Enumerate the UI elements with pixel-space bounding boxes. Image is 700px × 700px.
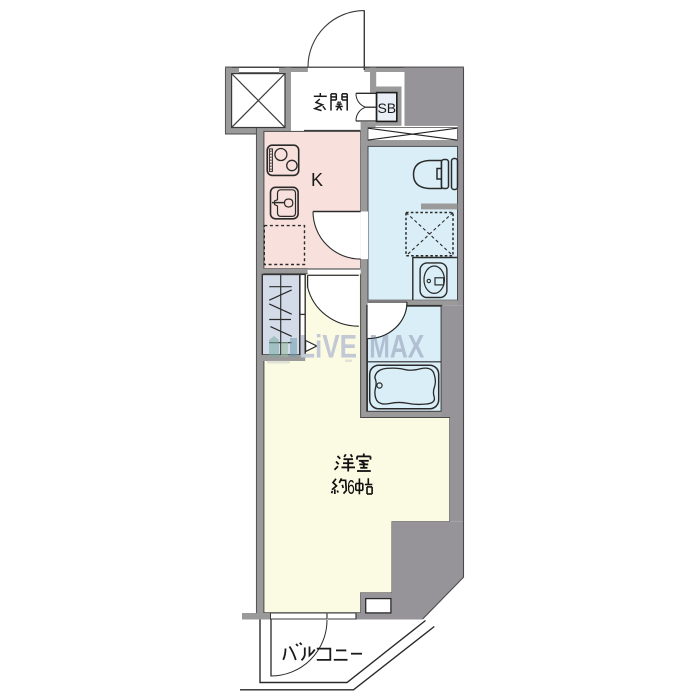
svg-text:LiVE: LiVE [299,329,357,365]
svg-text:6: 6 [347,477,355,499]
svg-text:SB: SB [377,100,396,116]
svg-text:MAX: MAX [369,329,425,365]
svg-text:K: K [311,170,323,190]
